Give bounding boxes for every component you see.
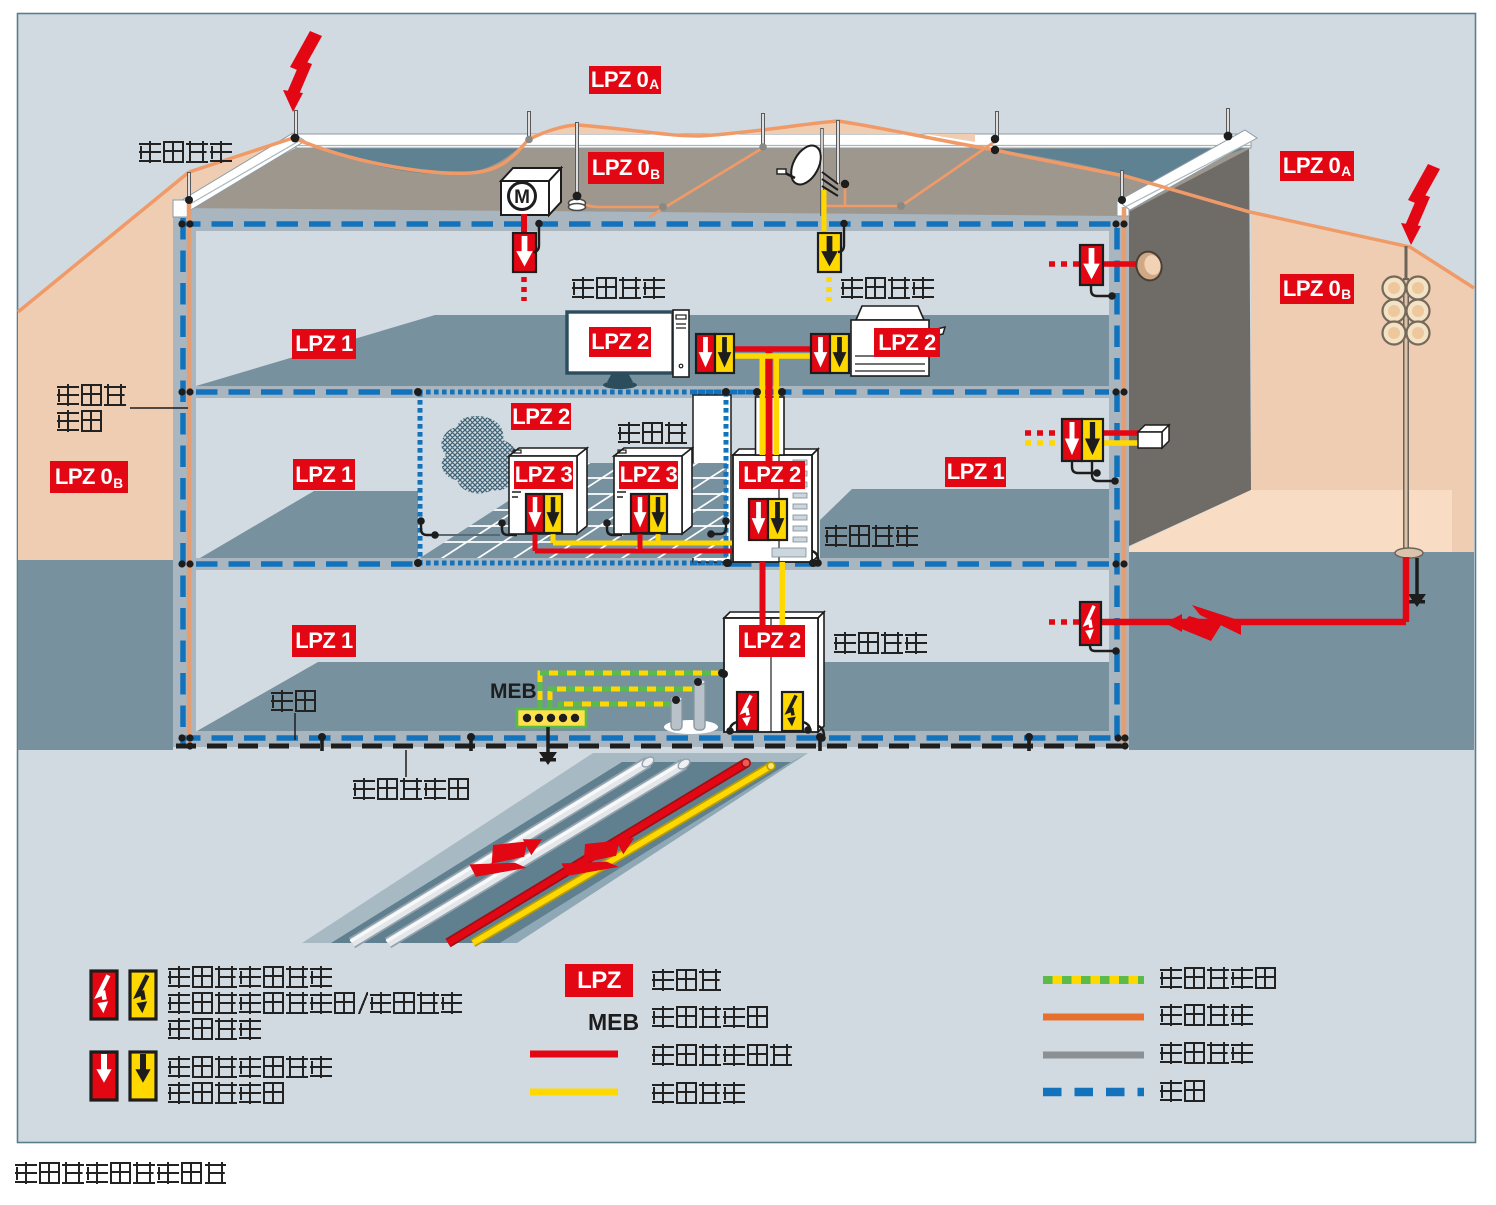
svg-text:MEB: MEB	[490, 680, 537, 703]
svg-text:M: M	[514, 187, 530, 208]
svg-text:MEB: MEB	[588, 1009, 639, 1035]
